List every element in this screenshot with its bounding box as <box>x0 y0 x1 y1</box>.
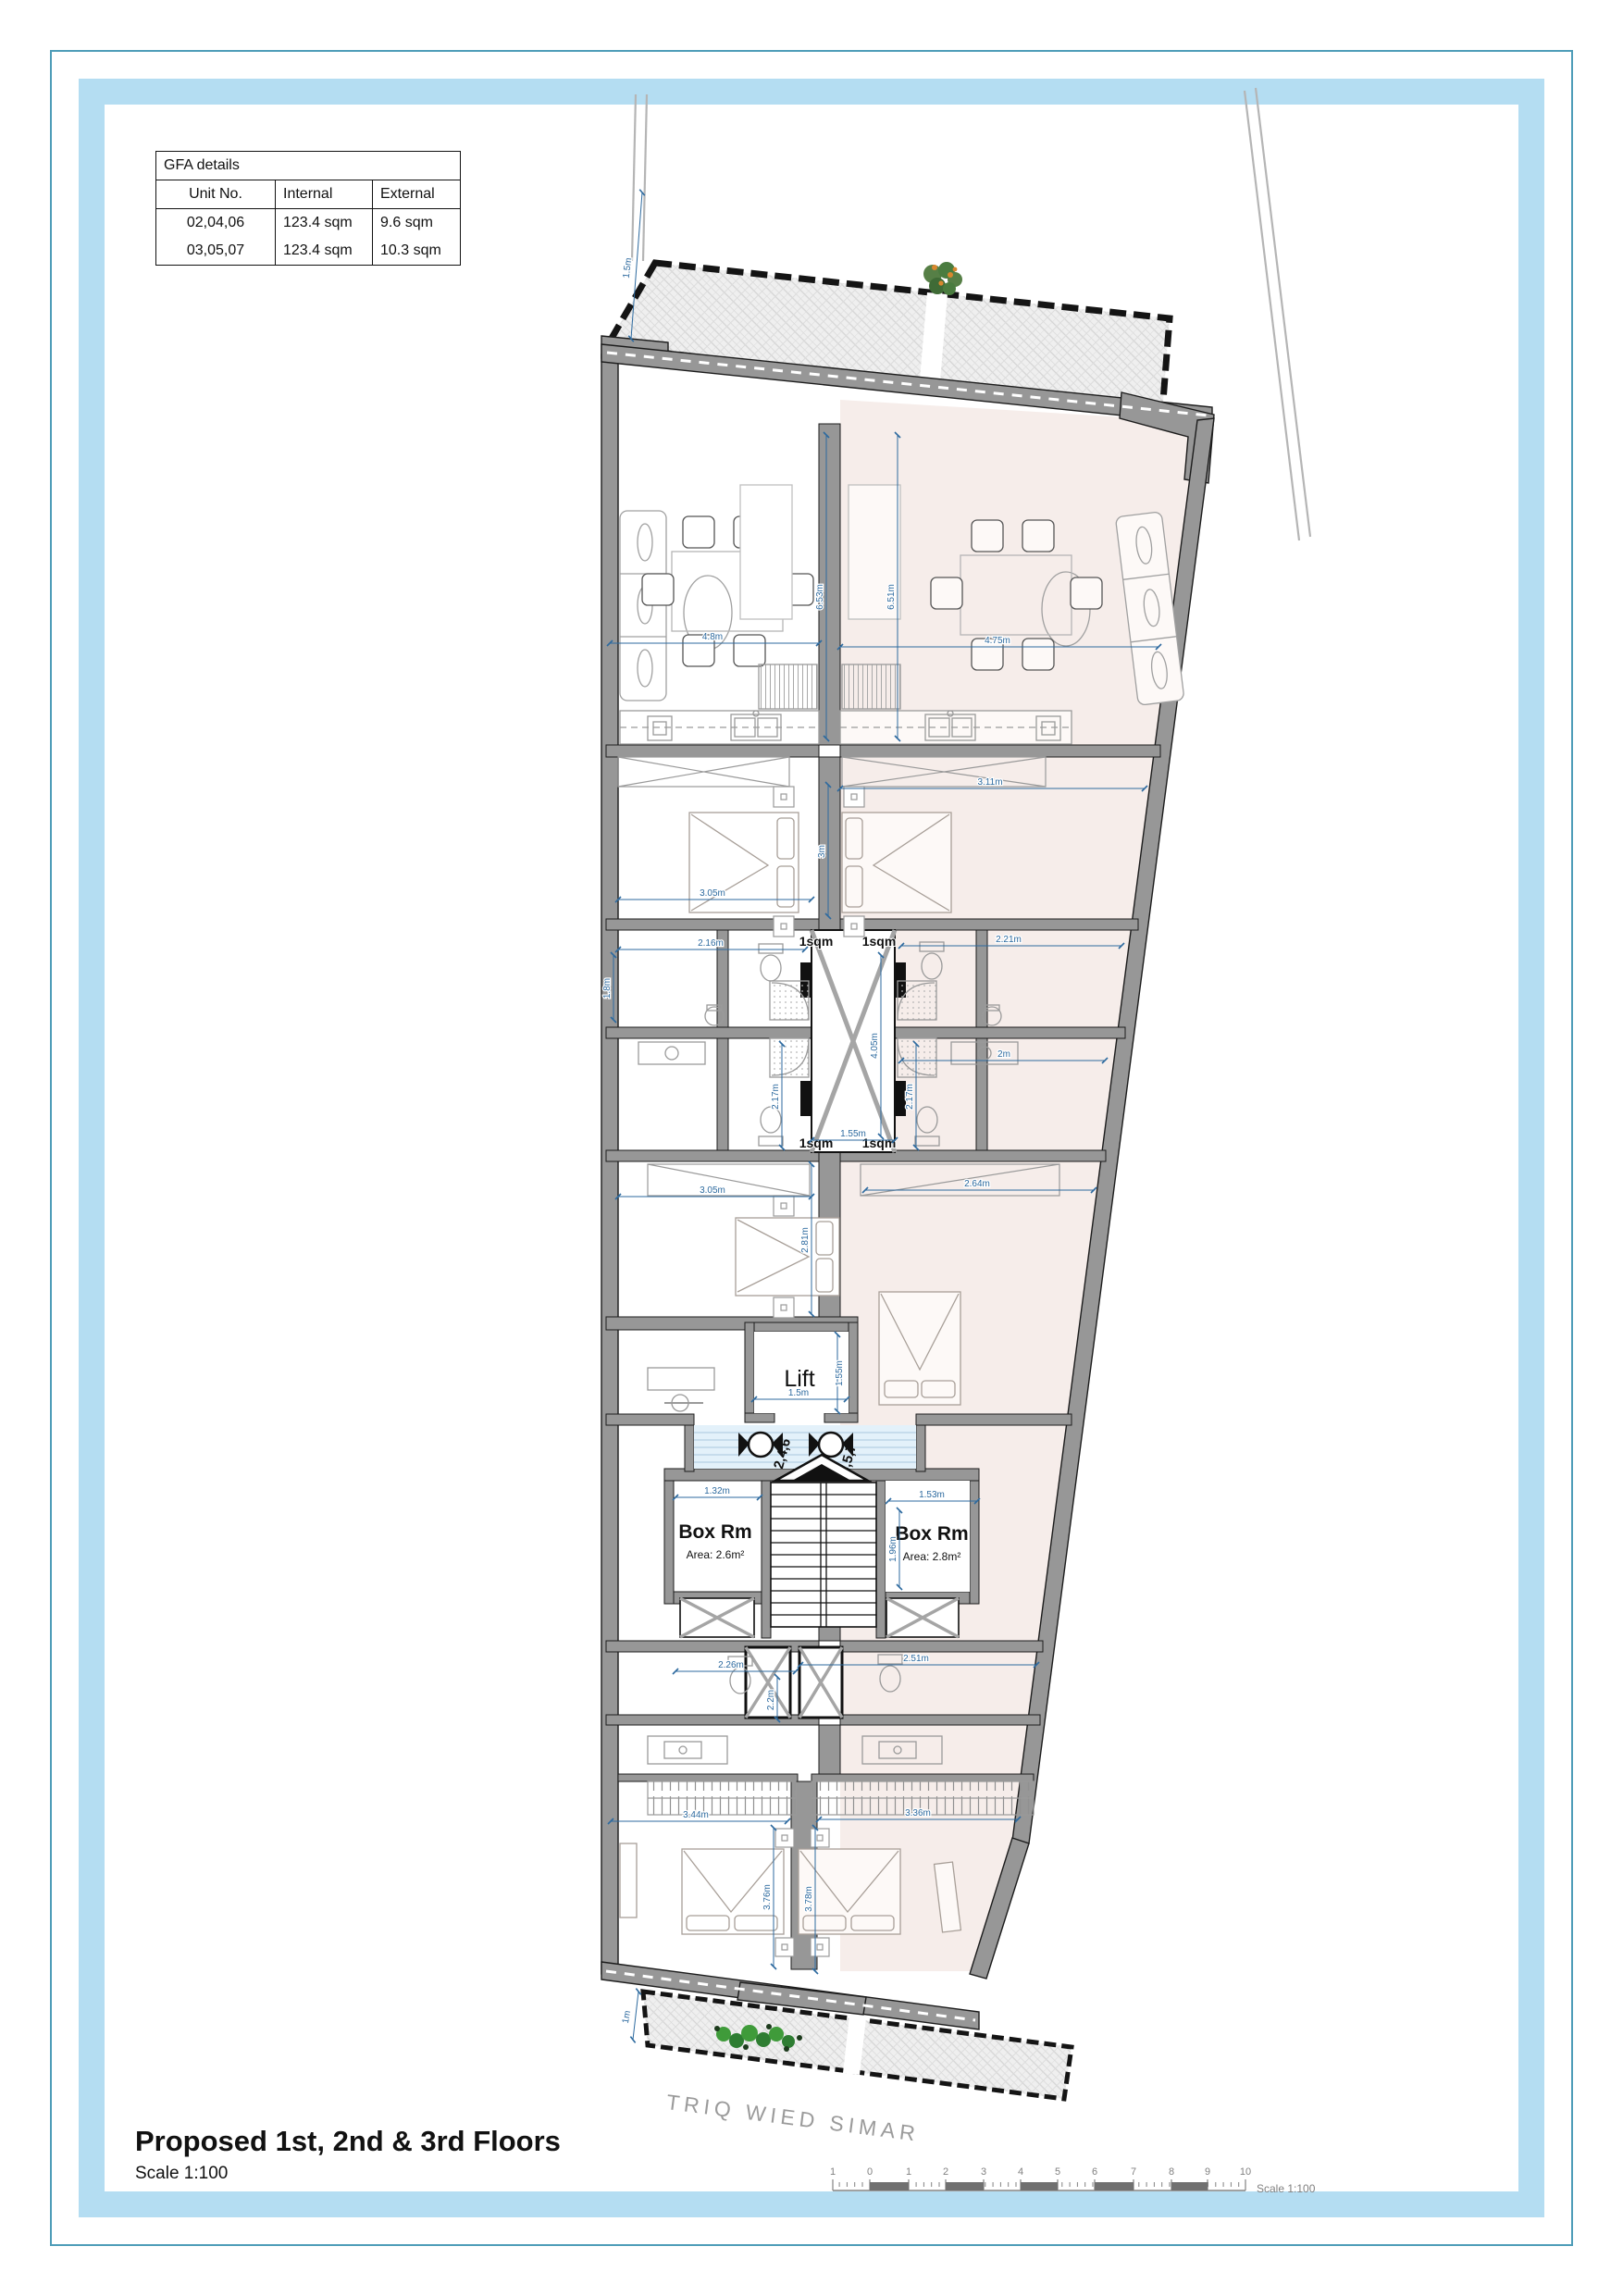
drawing-title: Proposed 1st, 2nd & 3rd Floors <box>135 2125 561 2158</box>
dim-label: 2.64m <box>964 1179 990 1189</box>
scale-bar-caption: Scale 1:100 <box>1257 2182 1316 2195</box>
scale-tick-label: 2 <box>943 2166 948 2178</box>
scale-tick-label: 8 <box>1169 2166 1174 2178</box>
bed-double <box>736 1218 839 1296</box>
scale-tick-label: 9 <box>1205 2166 1210 2178</box>
dim-label: 3m <box>817 845 827 858</box>
toilet <box>759 1107 783 1146</box>
scale-tick-label: 5 <box>1055 2166 1060 2178</box>
vanity <box>648 1736 727 1764</box>
scale-tick-label: 10 <box>1240 2166 1251 2178</box>
scale-tick-label: 1 <box>830 2166 836 2178</box>
dim-label: 1m <box>621 2010 633 2025</box>
dim-label: 2.51m <box>903 1654 929 1664</box>
box-room-left-label: Box Rm <box>678 1521 751 1543</box>
dim-label: 2.21m <box>996 935 1022 945</box>
dim-label: 3.36m <box>905 1808 931 1818</box>
dim-label: 2m <box>997 1049 1010 1060</box>
dim-label: 1.8m <box>602 978 613 999</box>
service-shaft: 1sqm 1sqm 1sqm 1sqm <box>799 930 906 1152</box>
scale-tick-label: 3 <box>981 2166 986 2178</box>
dim-label: 2.17m <box>905 1084 915 1110</box>
scale-tick-label: 6 <box>1092 2166 1097 2178</box>
dresser <box>620 1843 637 1917</box>
drawing-sheet: GFA details Unit No. Internal External 0… <box>0 0 1623 2296</box>
dim-label: 1.5m <box>788 1388 809 1398</box>
vanity <box>638 1042 705 1064</box>
dim-label: 2.16m <box>698 938 724 949</box>
dim-label: 1.5m <box>622 257 635 279</box>
scale-tick-label: 4 <box>1018 2166 1023 2178</box>
dim-label: 3.78m <box>804 1886 814 1912</box>
dim-label: 6.53m <box>815 584 825 610</box>
shower <box>898 981 936 1020</box>
dim-label: 1.96m <box>888 1536 898 1562</box>
tall-cabinet-left <box>740 485 792 619</box>
bed-double <box>879 1292 960 1405</box>
scale-tick-label: 0 <box>867 2166 873 2178</box>
shaft-area-label: 1sqm <box>799 934 834 949</box>
dim-label: 2.2m <box>766 1690 776 1710</box>
dim-label: 4.8m <box>702 632 723 642</box>
box-room-right-area: Area: 2.8m² <box>903 1550 961 1563</box>
dim-label: 1.32m <box>704 1486 730 1496</box>
box-room-right-label: Box Rm <box>895 1523 968 1545</box>
shaft-area-label: 1sqm <box>862 1136 897 1150</box>
dim-label: 2.26m <box>718 1660 744 1670</box>
dim-label: 2.81m <box>800 1227 811 1253</box>
scale-tick-label: 7 <box>1131 2166 1136 2178</box>
dim-label: 3.11m <box>977 777 1002 788</box>
dim-label: 6.51m <box>886 584 897 610</box>
dim-label: 3.05m <box>700 888 725 899</box>
shower <box>770 1038 809 1077</box>
dim-label: 1.55m <box>835 1360 845 1386</box>
scale-bar: 1 0 1 2 3 4 5 6 7 8 9 10 <box>824 2162 1453 2203</box>
scale-tick-label: 1 <box>906 2166 911 2178</box>
shower <box>898 1038 936 1077</box>
dim-label: 2.17m <box>771 1084 781 1110</box>
bed-double <box>842 813 951 912</box>
appliance-bank-right <box>842 664 900 709</box>
shaft-area-label: 1sqm <box>862 934 897 949</box>
box-room-left-area: Area: 2.6m² <box>687 1548 745 1561</box>
dim-label: 1.55m <box>840 1129 866 1139</box>
dim-label: 4.05m <box>870 1033 880 1059</box>
staircase <box>771 1455 876 1627</box>
shower <box>770 981 809 1020</box>
vanity <box>648 1368 714 1411</box>
floor-plan: 2,4,6 3,5,7 1sqm 1sqm 1sqm 1sqm <box>0 0 1623 2296</box>
dim-label: 1.53m <box>919 1490 945 1500</box>
dim-label: 3.05m <box>700 1185 725 1196</box>
shaft-area-label: 1sqm <box>799 1136 834 1150</box>
drawing-scale: Scale 1:100 <box>135 2164 561 2184</box>
dim-label: 3.44m <box>683 1810 709 1820</box>
dim-label: 4.75m <box>985 636 1010 646</box>
dim-label: 3.76m <box>762 1884 773 1910</box>
title-block: Proposed 1st, 2nd & 3rd Floors Scale 1:1… <box>135 2125 561 2184</box>
appliance-bank-left <box>759 664 817 709</box>
